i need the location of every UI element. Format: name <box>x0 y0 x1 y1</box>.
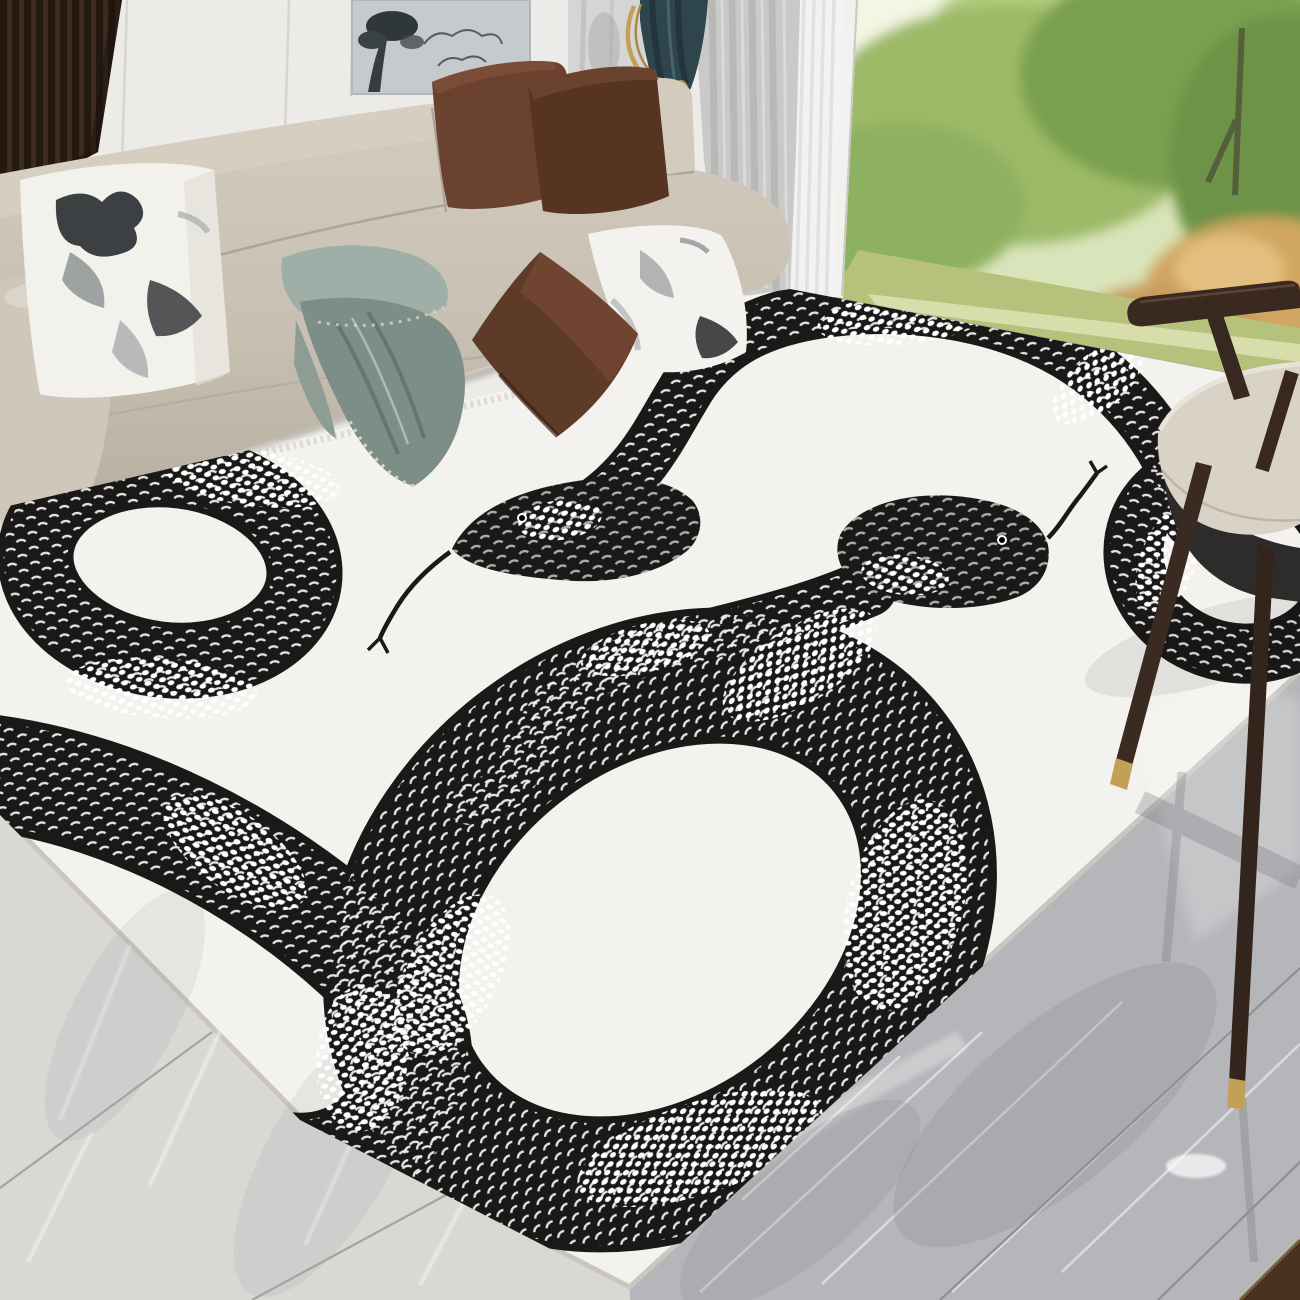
light-spot <box>1166 1154 1226 1178</box>
arm-ink-pillow <box>20 163 230 398</box>
snake-eye-right <box>998 536 1006 544</box>
living-room-photo <box>0 0 1300 1300</box>
brass-leg-tip-2 <box>1227 1078 1246 1110</box>
sofa-back-pillows <box>432 61 669 214</box>
snake-eye-left <box>518 514 526 522</box>
